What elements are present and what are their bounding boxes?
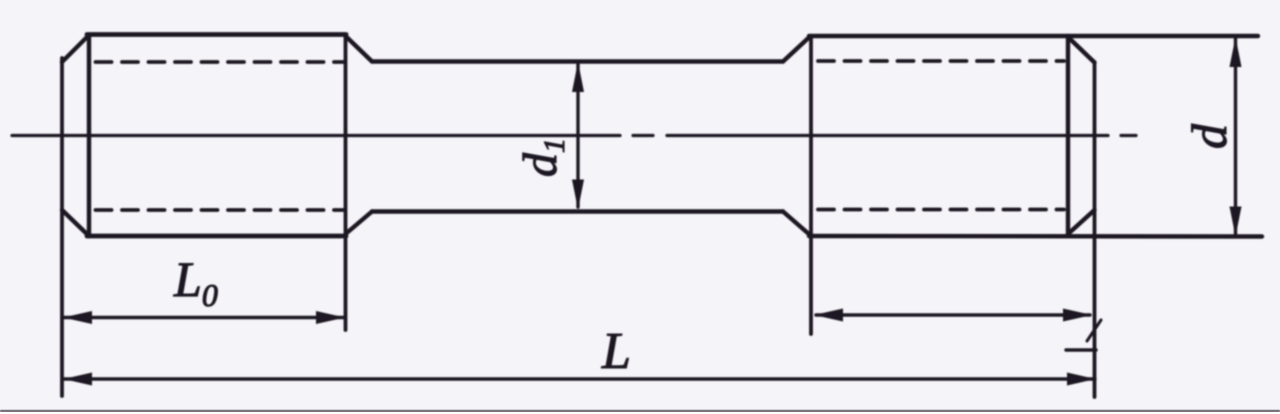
svg-text:d1: d1 <box>514 138 571 177</box>
svg-text:L0: L0 <box>173 251 218 313</box>
svg-text:L: L <box>601 323 631 380</box>
svg-text:d: d <box>1181 123 1237 149</box>
